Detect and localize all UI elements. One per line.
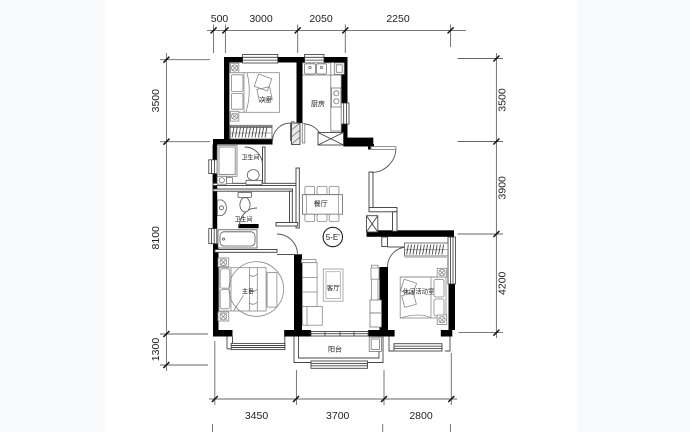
svg-text:3000: 3000 bbox=[249, 13, 273, 25]
svg-text:休闲活动室: 休闲活动室 bbox=[403, 287, 434, 296]
svg-text:卫生间: 卫生间 bbox=[234, 216, 252, 224]
svg-text:3450: 3450 bbox=[245, 410, 269, 422]
svg-text:3900: 3900 bbox=[497, 176, 509, 200]
svg-text:3500: 3500 bbox=[150, 89, 162, 113]
svg-text:500: 500 bbox=[211, 13, 229, 25]
svg-text:2050: 2050 bbox=[309, 13, 333, 25]
svg-text:2250: 2250 bbox=[386, 13, 410, 25]
svg-text:3500: 3500 bbox=[497, 88, 509, 112]
svg-text:1300: 1300 bbox=[150, 338, 162, 362]
svg-text:卫生间: 卫生间 bbox=[241, 154, 259, 162]
svg-text:主卧: 主卧 bbox=[242, 287, 256, 296]
svg-text:客厅: 客厅 bbox=[327, 283, 341, 292]
svg-text:3700: 3700 bbox=[326, 410, 350, 422]
svg-text:阳台: 阳台 bbox=[328, 345, 342, 354]
svg-text:餐厅: 餐厅 bbox=[314, 199, 328, 208]
svg-text:5-E': 5-E' bbox=[326, 233, 340, 242]
svg-text:厨房: 厨房 bbox=[311, 99, 325, 108]
svg-text:8100: 8100 bbox=[150, 226, 162, 250]
svg-text:次卧: 次卧 bbox=[259, 95, 273, 104]
svg-text:2800: 2800 bbox=[409, 410, 433, 422]
svg-text:4200: 4200 bbox=[497, 271, 509, 295]
